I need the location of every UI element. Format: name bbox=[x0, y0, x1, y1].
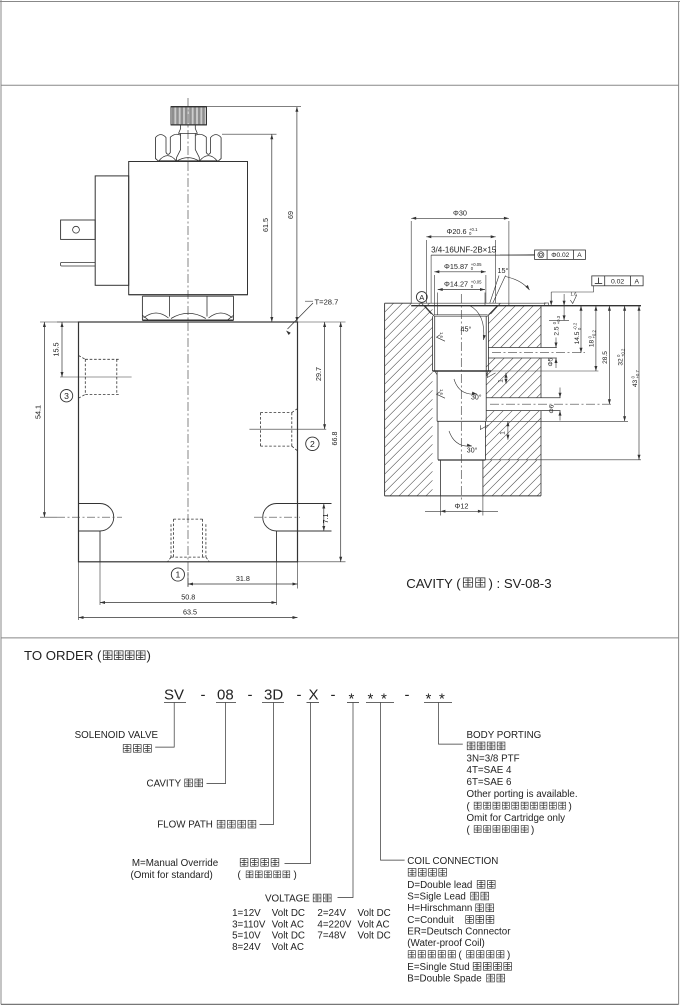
svg-text:14.5: 14.5 bbox=[574, 331, 581, 344]
svg-text:1: 1 bbox=[499, 431, 506, 435]
svg-text:15°: 15° bbox=[498, 266, 509, 275]
svg-text:50.8: 50.8 bbox=[181, 593, 195, 602]
svg-text:*: * bbox=[349, 691, 355, 708]
svg-text:1: 1 bbox=[176, 570, 181, 580]
svg-text:45°: 45° bbox=[461, 325, 472, 334]
svg-text:1=12V: 1=12V bbox=[232, 908, 261, 919]
svg-text:X: X bbox=[309, 687, 319, 704]
svg-text:-: - bbox=[248, 687, 253, 704]
svg-text:61.5: 61.5 bbox=[261, 218, 270, 232]
svg-text:Volt DC: Volt DC bbox=[358, 931, 391, 942]
svg-text:3=110V: 3=110V bbox=[232, 919, 266, 930]
svg-text:Other porting is available.: Other porting is available. bbox=[467, 789, 578, 800]
svg-text:-: - bbox=[405, 687, 410, 704]
svg-text:Φ0.02: Φ0.02 bbox=[551, 252, 569, 259]
svg-text:43: 43 bbox=[632, 380, 639, 388]
svg-text:6T=SAE 6: 6T=SAE 6 bbox=[467, 777, 512, 788]
svg-text:3/4-16UNF-2B×15: 3/4-16UNF-2B×15 bbox=[431, 246, 497, 255]
svg-text:Volt DC: Volt DC bbox=[272, 908, 305, 919]
svg-text:COIL CONNECTION: COIL CONNECTION bbox=[407, 856, 498, 867]
svg-text:D=Double lead: D=Double lead bbox=[407, 880, 472, 891]
svg-text:): ) bbox=[531, 825, 534, 836]
svg-text:3D: 3D bbox=[264, 687, 283, 704]
svg-text:69: 69 bbox=[286, 211, 295, 219]
svg-text:SOLENOID VALVE: SOLENOID VALVE bbox=[75, 730, 159, 741]
svg-text:-: - bbox=[297, 687, 302, 704]
svg-text:1.6: 1.6 bbox=[571, 292, 578, 297]
svg-text:7.1: 7.1 bbox=[321, 514, 330, 524]
svg-text:8=24V: 8=24V bbox=[232, 942, 261, 953]
svg-text:28.5: 28.5 bbox=[602, 351, 609, 364]
svg-text:CAVITY (: CAVITY ( bbox=[406, 576, 461, 591]
svg-text:S=Sigle Lead: S=Sigle Lead bbox=[407, 892, 466, 903]
svg-text:B=Double Spade: B=Double Spade bbox=[407, 974, 482, 985]
svg-text:1: 1 bbox=[497, 379, 504, 383]
svg-text:32: 32 bbox=[617, 358, 624, 366]
svg-text:CAVITY: CAVITY bbox=[147, 778, 182, 789]
svg-text:): ) bbox=[147, 648, 151, 663]
svg-text:4=220V: 4=220V bbox=[317, 919, 352, 930]
svg-text:63.5: 63.5 bbox=[183, 608, 197, 617]
svg-text:*: * bbox=[426, 691, 432, 708]
svg-text:-: - bbox=[201, 687, 206, 704]
svg-text:66.8: 66.8 bbox=[330, 432, 339, 446]
svg-text:4T=SAE 4: 4T=SAE 4 bbox=[467, 765, 512, 776]
svg-text:30°: 30° bbox=[471, 394, 482, 402]
svg-text:2: 2 bbox=[310, 439, 315, 449]
svg-text:18: 18 bbox=[589, 340, 596, 348]
svg-text:Volt DC: Volt DC bbox=[358, 908, 391, 919]
svg-text:(Omit for standard): (Omit for standard) bbox=[131, 870, 213, 881]
svg-text:29.7: 29.7 bbox=[314, 367, 323, 381]
svg-text:SV: SV bbox=[164, 687, 184, 704]
svg-text:08: 08 bbox=[217, 687, 234, 704]
svg-text:M=Manual Override: M=Manual Override bbox=[132, 858, 219, 869]
svg-text:Φ20.6: Φ20.6 bbox=[447, 227, 467, 236]
svg-text:ER=Deutsch Connector: ER=Deutsch Connector bbox=[407, 927, 511, 938]
svg-text:(Water-proof Coil): (Water-proof Coil) bbox=[407, 938, 484, 949]
svg-text:Φ15.87: Φ15.87 bbox=[444, 262, 468, 271]
svg-text:*: * bbox=[439, 691, 445, 708]
svg-text:2=24V: 2=24V bbox=[317, 908, 346, 919]
svg-text:0.02: 0.02 bbox=[611, 279, 624, 286]
svg-text:Φ12: Φ12 bbox=[455, 501, 469, 510]
svg-text:*: * bbox=[381, 691, 387, 708]
svg-text:Omit for Cartridge only: Omit for Cartridge only bbox=[467, 813, 566, 824]
svg-text:*: * bbox=[368, 691, 374, 708]
svg-text:-0.2: -0.2 bbox=[573, 322, 578, 330]
svg-text:C=Conduit: C=Conduit bbox=[407, 915, 454, 926]
svg-text:3: 3 bbox=[64, 391, 69, 401]
svg-text:) : SV-08-3: ) : SV-08-3 bbox=[489, 576, 552, 591]
svg-text:Volt DC: Volt DC bbox=[272, 931, 305, 942]
svg-text:A: A bbox=[635, 279, 640, 286]
svg-text:): ) bbox=[294, 870, 297, 881]
svg-text:-: - bbox=[331, 687, 336, 704]
svg-text:Φ6: Φ6 bbox=[548, 404, 555, 413]
svg-text:31.8: 31.8 bbox=[236, 574, 250, 583]
svg-text:54.1: 54.1 bbox=[34, 405, 43, 419]
svg-text:7=48V: 7=48V bbox=[317, 931, 346, 942]
svg-text:Φ30: Φ30 bbox=[453, 208, 467, 217]
svg-text:H=Hirschmann: H=Hirschmann bbox=[407, 903, 472, 914]
svg-text:1.6: 1.6 bbox=[439, 332, 444, 338]
svg-text:A: A bbox=[577, 252, 582, 259]
svg-text:2.5: 2.5 bbox=[554, 326, 561, 335]
svg-text:T=28.7: T=28.7 bbox=[315, 298, 339, 307]
svg-text:5=10V: 5=10V bbox=[232, 931, 261, 942]
svg-text:15.5: 15.5 bbox=[51, 343, 60, 357]
svg-text:FLOW PATH: FLOW PATH bbox=[157, 820, 213, 831]
svg-text:3N=3/8 PTF: 3N=3/8 PTF bbox=[467, 753, 520, 764]
svg-text:1.6: 1.6 bbox=[439, 389, 444, 395]
svg-text:E=Single Stud: E=Single Stud bbox=[407, 962, 469, 973]
svg-text:VOLTAGE: VOLTAGE bbox=[265, 893, 310, 904]
svg-text:30°: 30° bbox=[467, 447, 478, 455]
svg-text:Φ14.27: Φ14.27 bbox=[444, 280, 468, 289]
svg-text:): ) bbox=[507, 950, 510, 961]
svg-text:Φ5: Φ5 bbox=[547, 357, 554, 366]
svg-text:TO ORDER (: TO ORDER ( bbox=[24, 648, 102, 663]
svg-text:Volt AC: Volt AC bbox=[272, 942, 304, 953]
svg-text:Volt AC: Volt AC bbox=[272, 919, 304, 930]
svg-text:): ) bbox=[569, 801, 572, 812]
svg-text:Volt AC: Volt AC bbox=[358, 919, 390, 930]
svg-text:BODY PORTING: BODY PORTING bbox=[467, 730, 542, 741]
